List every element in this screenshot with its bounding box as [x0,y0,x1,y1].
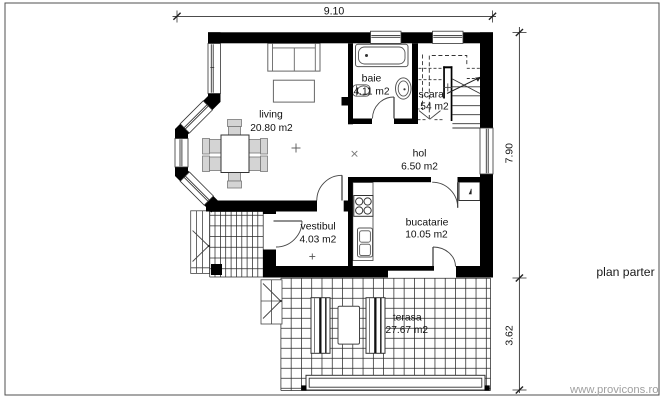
svg-text:7.90: 7.90 [505,143,516,163]
svg-text:baie: baie [362,73,382,84]
svg-text:vestibul: vestibul [301,221,336,232]
svg-text:4.11 m2: 4.11 m2 [353,86,389,97]
svg-text:hol: hol [413,149,427,160]
svg-text:living: living [259,109,283,120]
svg-text:4.03 m2: 4.03 m2 [300,235,337,246]
svg-text:10.05 m2: 10.05 m2 [405,229,448,240]
svg-text:27.67 m2: 27.67 m2 [386,325,429,336]
svg-text:plan parter: plan parter [596,265,654,279]
svg-text:3.62: 3.62 [505,325,516,345]
svg-text:www.provicons.ro: www.provicons.ro [569,384,659,396]
svg-text:6.50 m2: 6.50 m2 [401,161,438,172]
svg-text:scara: scara [419,90,445,101]
svg-text:9.10: 9.10 [324,6,345,18]
svg-text:bucatarie: bucatarie [406,217,449,228]
svg-text:terasa: terasa [393,312,422,323]
svg-text:20.80 m2: 20.80 m2 [250,123,293,134]
